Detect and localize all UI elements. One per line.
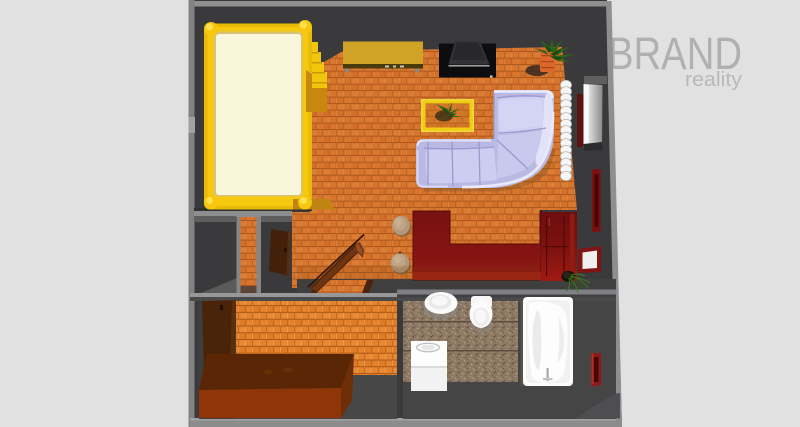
svg-text:reality: reality	[685, 69, 742, 91]
